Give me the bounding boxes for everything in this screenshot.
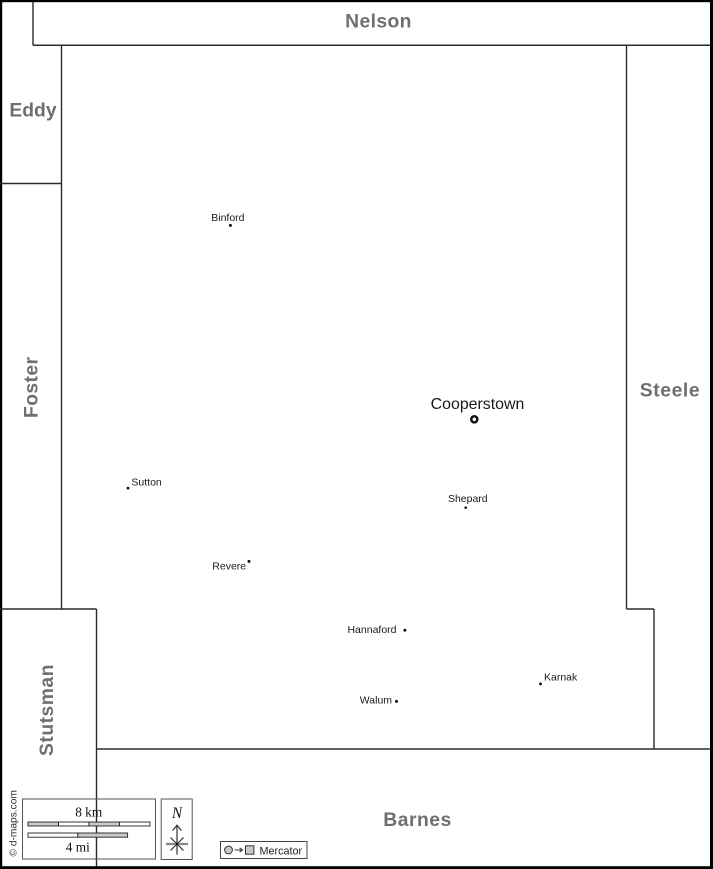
svg-text:Karnak: Karnak bbox=[544, 671, 578, 683]
svg-text:N: N bbox=[171, 805, 183, 822]
svg-text:Binford: Binford bbox=[211, 212, 244, 224]
svg-text:Nelson: Nelson bbox=[345, 12, 412, 33]
svg-text:Mercator: Mercator bbox=[260, 845, 303, 857]
svg-text:8 km: 8 km bbox=[75, 805, 103, 820]
svg-text:Stutsman: Stutsman bbox=[37, 664, 58, 756]
svg-text:Eddy: Eddy bbox=[9, 101, 56, 122]
svg-text:© d-maps.com: © d-maps.com bbox=[8, 790, 19, 856]
svg-text:Steele: Steele bbox=[640, 381, 700, 402]
svg-text:Sutton: Sutton bbox=[131, 477, 162, 489]
svg-text:4 mi: 4 mi bbox=[66, 840, 90, 855]
svg-text:Cooperstown: Cooperstown bbox=[431, 396, 525, 413]
svg-text:Barnes: Barnes bbox=[383, 810, 451, 831]
svg-text:Shepard: Shepard bbox=[448, 493, 488, 505]
svg-text:Walum: Walum bbox=[360, 695, 393, 707]
svg-text:Foster: Foster bbox=[22, 357, 43, 418]
svg-text:Revere: Revere bbox=[212, 561, 246, 573]
svg-text:Hannaford: Hannaford bbox=[347, 624, 396, 636]
